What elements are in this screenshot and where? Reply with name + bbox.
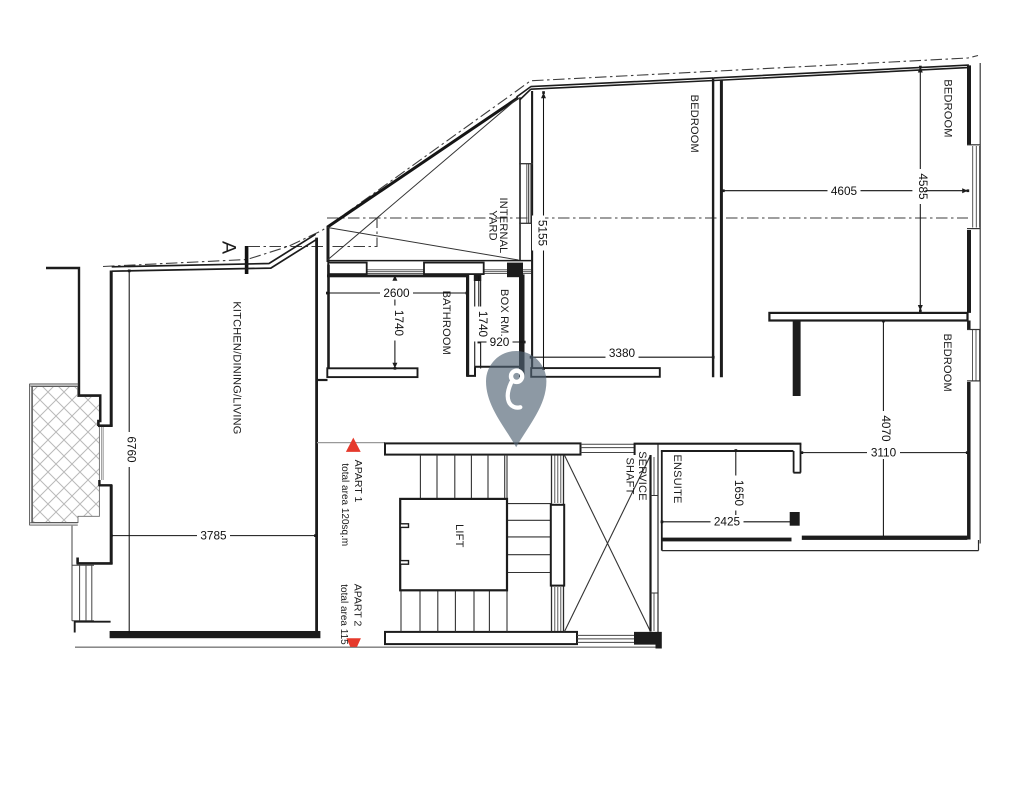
svg-text:2600: 2600 xyxy=(383,286,410,300)
svg-text:4585: 4585 xyxy=(916,173,930,200)
svg-text:SERVICE: SERVICE xyxy=(636,451,648,501)
svg-text:ENSUITE: ENSUITE xyxy=(671,454,683,503)
svg-text:LIFT: LIFT xyxy=(453,524,465,547)
svg-text:total area 115: total area 115 xyxy=(338,584,349,645)
svg-text:3785: 3785 xyxy=(200,529,227,543)
svg-text:total area 120sq.m: total area 120sq.m xyxy=(339,463,350,546)
svg-text:SHAFT: SHAFT xyxy=(624,457,636,494)
svg-text:6760: 6760 xyxy=(125,436,139,463)
svg-text:3110: 3110 xyxy=(871,446,897,460)
svg-text:3380: 3380 xyxy=(609,346,636,360)
svg-text:1740: 1740 xyxy=(476,311,490,338)
svg-text:A: A xyxy=(218,241,240,254)
svg-text:BEDROOM: BEDROOM xyxy=(688,95,700,153)
svg-text:1650: 1650 xyxy=(732,480,746,507)
svg-text:KITCHEN/DINING/LIVING: KITCHEN/DINING/LIVING xyxy=(231,301,243,434)
svg-text:BEDROOM: BEDROOM xyxy=(942,79,954,137)
svg-text:920: 920 xyxy=(490,335,510,349)
svg-text:BOX RM.: BOX RM. xyxy=(498,289,510,337)
svg-text:BEDROOM: BEDROOM xyxy=(941,334,953,392)
svg-text:4070: 4070 xyxy=(879,415,893,442)
svg-text:2425: 2425 xyxy=(714,515,741,529)
svg-text:5155: 5155 xyxy=(536,220,550,247)
svg-text:BATHROOM: BATHROOM xyxy=(440,291,452,355)
svg-text:YARD: YARD xyxy=(486,210,498,241)
svg-text:APART 2: APART 2 xyxy=(351,584,363,627)
svg-text:APART 1: APART 1 xyxy=(352,460,364,503)
svg-text:4605: 4605 xyxy=(831,184,858,198)
svg-text:1740: 1740 xyxy=(392,310,406,337)
